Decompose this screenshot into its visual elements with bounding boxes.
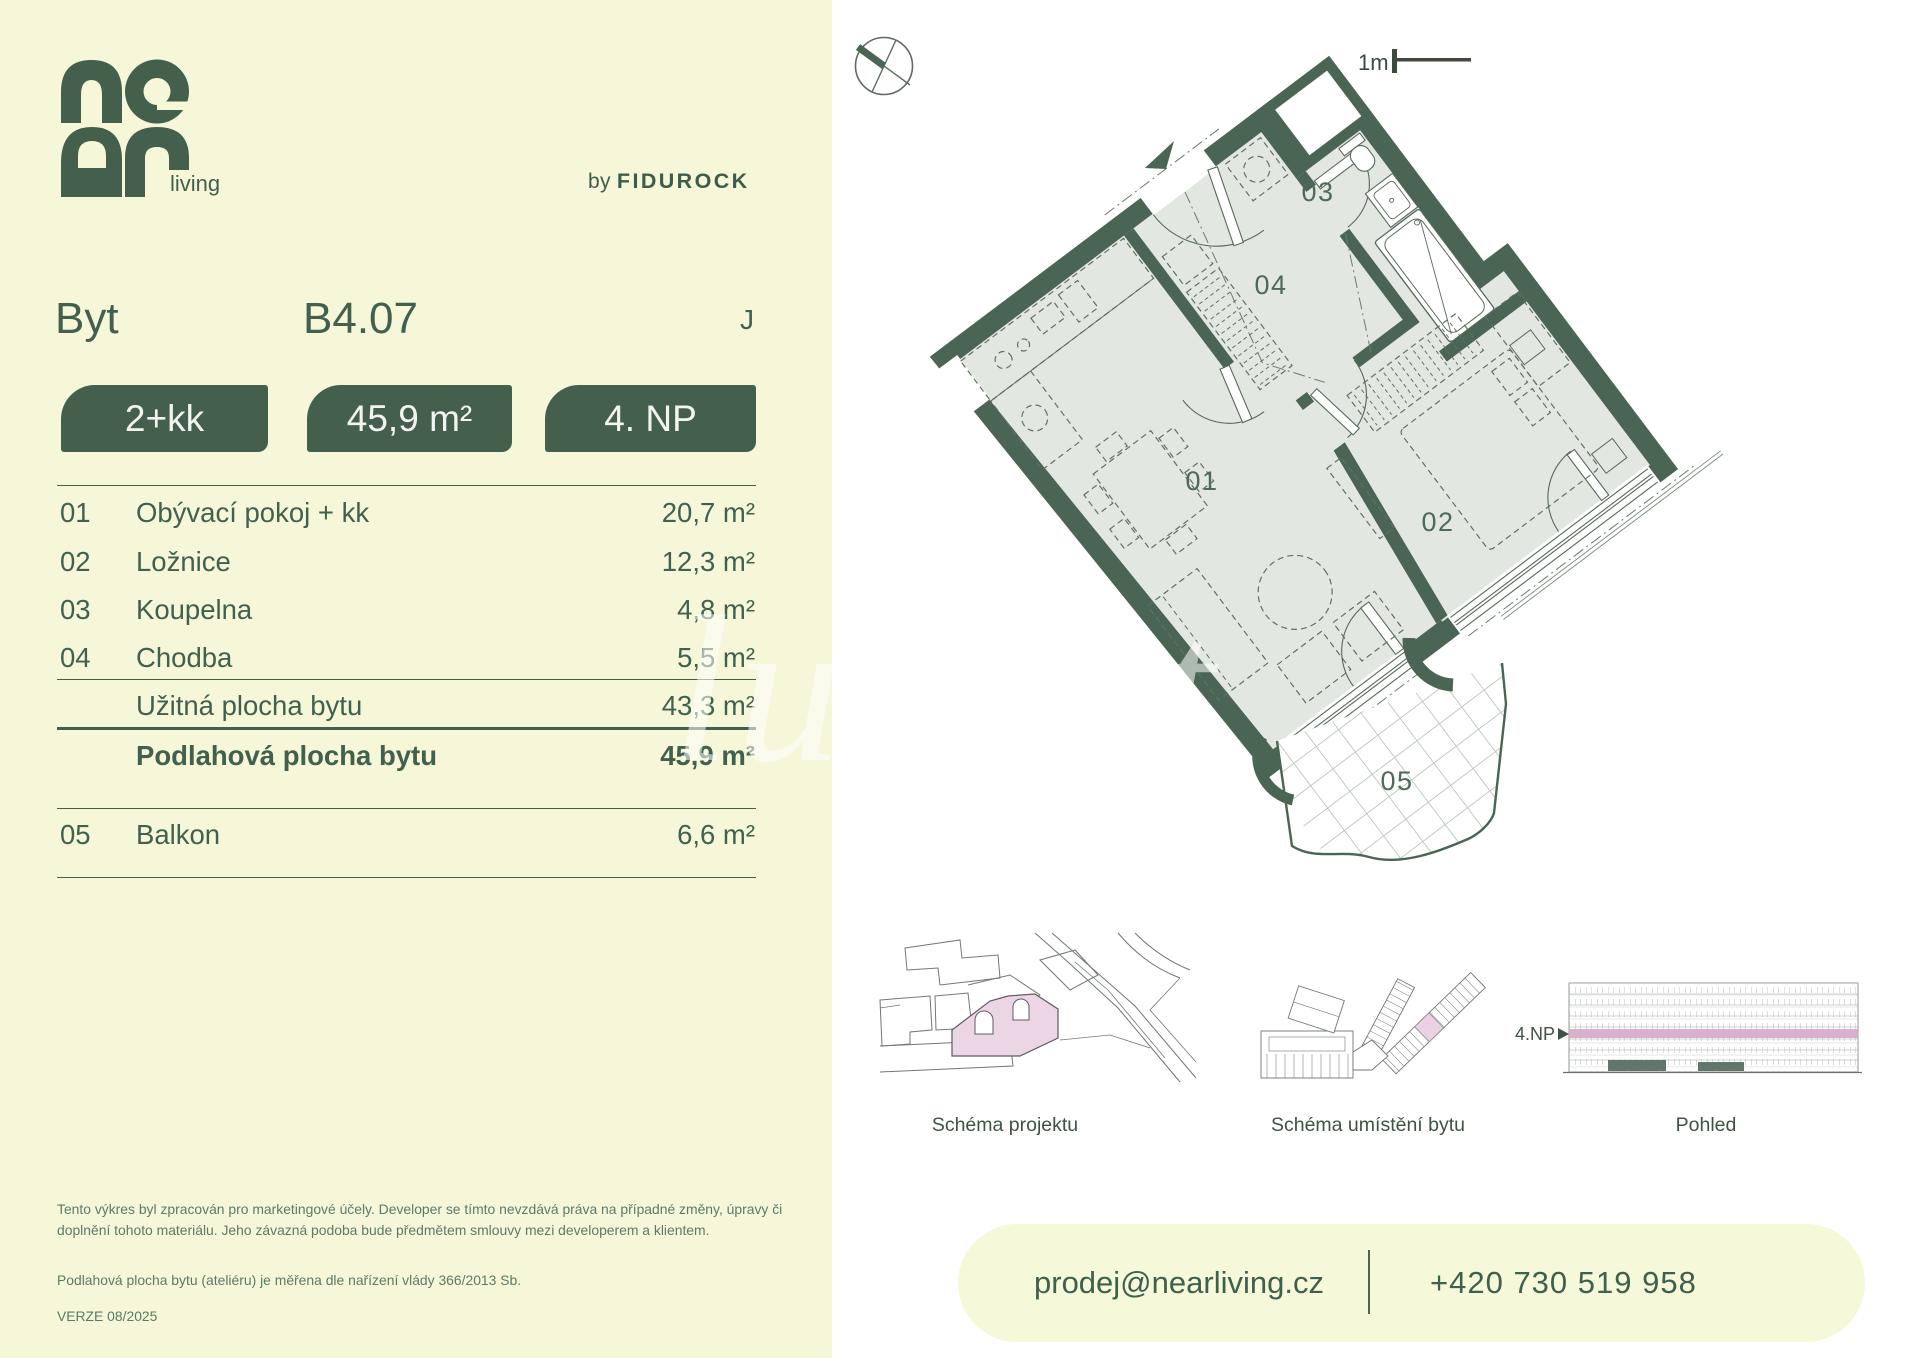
svg-text:4.NP: 4.NP	[1515, 1024, 1555, 1044]
svg-text:Pohled: Pohled	[1676, 1114, 1737, 1136]
svg-text:01: 01	[1185, 466, 1218, 496]
svg-text:Schéma projektu: Schéma projektu	[932, 1114, 1078, 1136]
svg-text:04: 04	[1254, 270, 1287, 300]
svg-text:Schéma umístění bytu: Schéma umístění bytu	[1271, 1114, 1465, 1136]
svg-text:1m: 1m	[1358, 50, 1389, 75]
svg-text:05: 05	[1380, 766, 1413, 796]
svg-text:03: 03	[1301, 177, 1334, 207]
svg-text:02: 02	[1421, 507, 1454, 537]
